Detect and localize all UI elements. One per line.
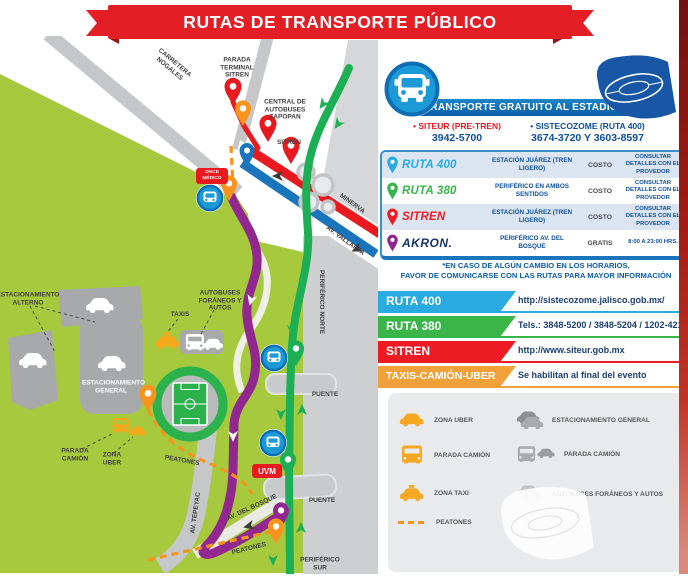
stadium bbox=[157, 371, 223, 437]
dashed-line-icon bbox=[398, 521, 428, 524]
contact-sistecozome: • SISTECOZOME (RUTA 400) 3674-3720 Y 360… bbox=[505, 121, 670, 144]
note-line-1: *EN CASO DE ALGÚN CAMBIO EN LOS HORARIOS… bbox=[390, 261, 682, 271]
route-cost: COSTO bbox=[578, 162, 622, 169]
bar-taxis-camion-uber: TAXIS-CAMIÓN-UBER Se habilitan al final … bbox=[378, 366, 686, 388]
route-cost: COSTO bbox=[578, 188, 622, 195]
route-station: ESTACIÓN JUÁREZ (TREN LIGERO) bbox=[486, 209, 578, 225]
bridge-puente-1 bbox=[266, 374, 336, 394]
routes-table: RUTA 400 ESTACIÓN JUÁREZ (TREN LIGERO) C… bbox=[380, 150, 686, 260]
bar-sitren: SITREN http://www.siteur.gob.mx bbox=[378, 341, 686, 363]
schedule-note: *EN CASO DE ALGÚN CAMBIO EN LOS HORARIOS… bbox=[390, 261, 682, 281]
sistecozome-name: • SISTECOZOME (RUTA 400) bbox=[505, 121, 670, 131]
route-cost: GRATIS bbox=[578, 240, 622, 247]
legend-zona-uber: ZONA UBER bbox=[398, 411, 473, 429]
siteur-phone[interactable]: 3942-5700 bbox=[398, 132, 516, 144]
route-name: RUTA 400 bbox=[402, 159, 486, 171]
route-name: SITREN bbox=[402, 211, 486, 223]
bar-ruta-400: RUTA 400 http://sistecozome.jalisco.gob.… bbox=[378, 291, 686, 313]
sitren-url[interactable]: http://www.siteur.gob.mx bbox=[518, 345, 625, 355]
table-row-akron: AKRON. PERIFÉRICO AV. DEL BOSQUE GRATIS … bbox=[382, 230, 684, 256]
route-name: RUTA 380 bbox=[402, 185, 486, 197]
route-details: CONSULTAR DETALLES CON EL PROVEDOR bbox=[622, 154, 684, 176]
pin-icon bbox=[382, 208, 402, 227]
bus-icon bbox=[398, 445, 426, 465]
page-edge-strip bbox=[679, 0, 688, 574]
taxi-icon bbox=[398, 483, 426, 504]
medico-badge: ONCE MÉDICO bbox=[196, 168, 228, 184]
bar-label: SITREN bbox=[378, 341, 516, 361]
route-details: CONSULTAR DETALLES CON EL PROVEDOR bbox=[622, 206, 684, 228]
bus-stop-icon bbox=[259, 429, 287, 457]
legend-label: ESTACIONAMIENTO GENERAL bbox=[552, 417, 650, 424]
legend-label: PEATONES bbox=[436, 519, 472, 526]
uvm-badge: UVM bbox=[252, 464, 282, 478]
taxis-note: Se habilitan al final del evento bbox=[518, 370, 647, 380]
bus-icon bbox=[113, 418, 129, 432]
legend-estacionamiento-general: ESTACIONAMIENTO GENERAL bbox=[516, 409, 650, 431]
bar-label: RUTA 400 bbox=[378, 291, 516, 311]
table-row-ruta-380: RUTA 380 PERIFÉRICO EN AMBOS SENTIDOS CO… bbox=[382, 178, 684, 204]
legend-parada-camion-gray: PARADA CAMIÓN bbox=[516, 445, 620, 464]
legend-peatones: PEATONES bbox=[398, 519, 472, 526]
ruta-400-url[interactable]: http://sistecozome.jalisco.gob.mx/ bbox=[518, 295, 665, 305]
stadium-watermark bbox=[488, 481, 603, 566]
car-icon bbox=[398, 411, 426, 429]
bus-stop-icon bbox=[196, 184, 224, 212]
akron-logo: AKRON. bbox=[402, 236, 486, 250]
table-row-ruta-400: RUTA 400 ESTACIÓN JUÁREZ (TREN LIGERO) C… bbox=[382, 152, 684, 178]
bus-badge-icon bbox=[383, 60, 441, 118]
legend-label: ZONA TAXI bbox=[434, 490, 469, 497]
title-ribbon: RUTAS DE TRANSPORTE PÚBLICO bbox=[108, 5, 572, 39]
route-station: PERIFÉRICO EN AMBOS SENTIDOS bbox=[486, 183, 578, 199]
legend-label: PARADA CAMIÓN bbox=[434, 452, 490, 459]
infographic-page: CARRETERA NOGALES PARADA TERMINAL SITREN… bbox=[0, 0, 688, 580]
table-row-sitren: SITREN ESTACIÓN JUÁREZ (TREN LIGERO) COS… bbox=[382, 204, 684, 230]
route-cost: COSTO bbox=[578, 214, 622, 221]
ruta-380-phones[interactable]: Tels.: 3848-5200 / 3848-5204 / 1202-4214 bbox=[518, 320, 687, 330]
route-station: PERIFÉRICO AV. DEL BOSQUE bbox=[486, 235, 578, 251]
stadium-icon bbox=[586, 50, 682, 122]
bus-car-icon bbox=[516, 445, 556, 464]
pin-icon bbox=[382, 156, 402, 175]
route-details: 8:00 A 23:00 HRS. bbox=[622, 239, 684, 246]
cars-icon bbox=[516, 409, 544, 431]
periferico-road bbox=[303, 236, 378, 574]
sistecozome-phone[interactable]: 3674-3720 Y 3603-8597 bbox=[505, 132, 670, 144]
note-line-2: FAVOR DE COMUNICARSE CON LAS RUTAS PARA … bbox=[390, 271, 682, 281]
bar-label: RUTA 380 bbox=[378, 316, 516, 336]
route-station: ESTACIÓN JUÁREZ (TREN LIGERO) bbox=[486, 157, 578, 173]
bar-ruta-380: RUTA 380 Tels.: 3848-5200 / 3848-5204 / … bbox=[378, 316, 686, 338]
legend-box: ZONA UBER PARADA CAMIÓN ZONA TAXI PEATON… bbox=[388, 393, 684, 572]
legend-label: PARADA CAMIÓN bbox=[564, 451, 620, 458]
legend-parada-camion: PARADA CAMIÓN bbox=[398, 445, 490, 465]
route-details: CONSULTAR DETALLES CON EL PROVEDOR bbox=[622, 180, 684, 202]
pin-icon bbox=[382, 234, 402, 253]
legend-zona-taxi: ZONA TAXI bbox=[398, 483, 469, 504]
bar-label: TAXIS-CAMIÓN-UBER bbox=[378, 366, 516, 386]
bus-stop-icon bbox=[260, 344, 288, 372]
pin-icon bbox=[382, 182, 402, 201]
contact-siteur: • SITEUR (PRE-TREN) 3942-5700 bbox=[398, 121, 516, 144]
page-title: RUTAS DE TRANSPORTE PÚBLICO bbox=[183, 12, 496, 33]
siteur-name: • SITEUR (PRE-TREN) bbox=[398, 121, 516, 131]
legend-label: ZONA UBER bbox=[434, 417, 473, 424]
